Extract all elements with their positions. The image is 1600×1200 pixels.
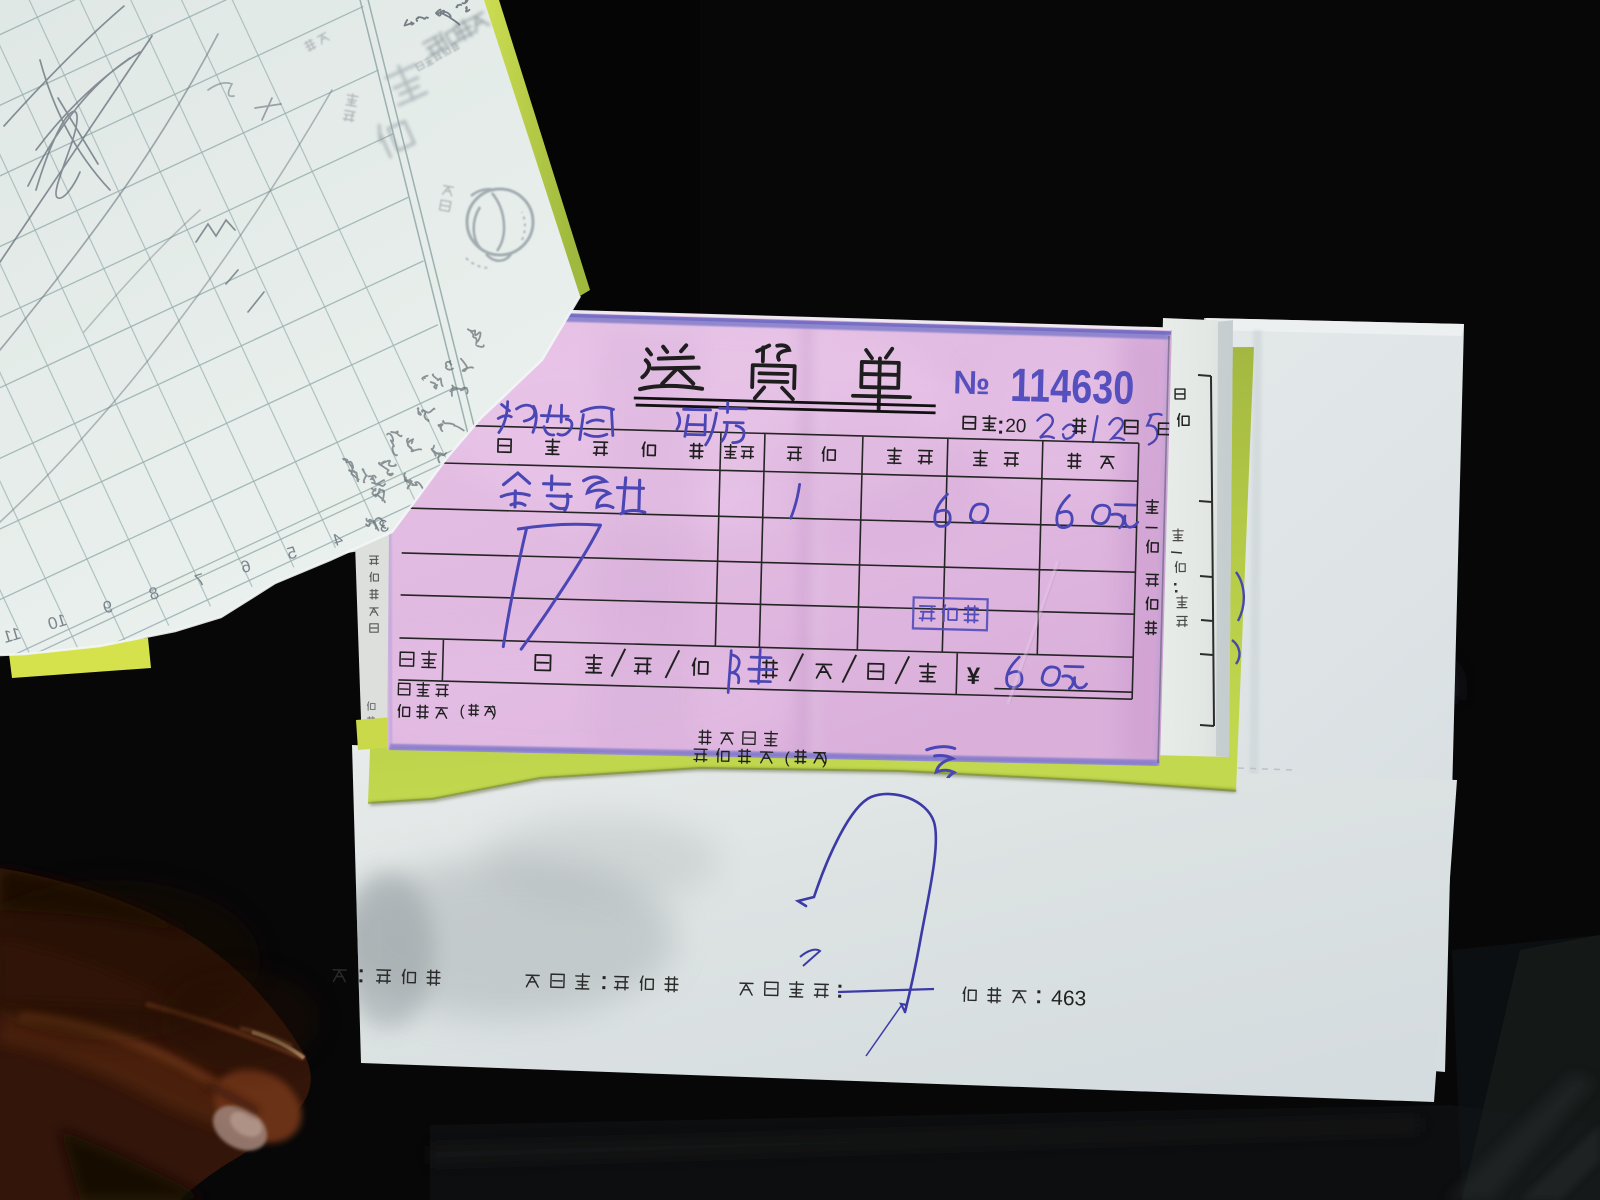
svg-text:114630: 114630 [1010,358,1135,414]
svg-text:463: 463 [1051,987,1087,1011]
svg-text:20: 20 [1005,416,1027,438]
svg-text:¥: ¥ [966,663,981,690]
svg-text:(: ( [459,703,464,720]
svg-text:): ) [822,751,828,768]
svg-text:№: № [953,363,991,401]
svg-text:): ) [491,703,496,720]
